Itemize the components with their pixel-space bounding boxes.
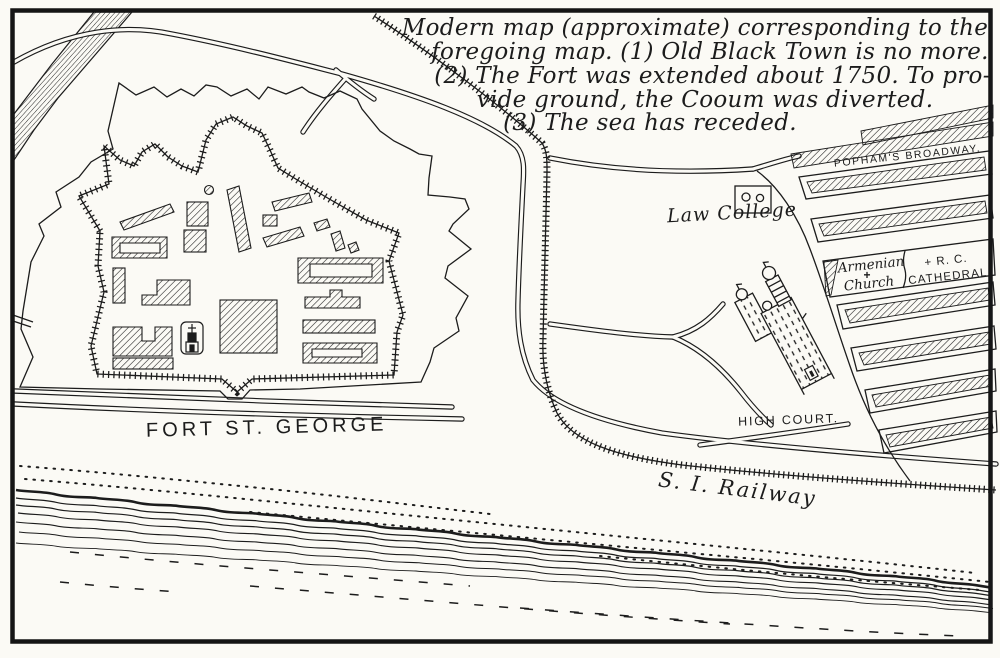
high-court-building [725,256,840,403]
armenian-church-block [823,239,995,297]
railway-line [374,16,996,490]
map-drawing [0,0,1000,658]
city-blocks [791,105,997,453]
fort-buildings [112,186,383,370]
cooum-river [14,12,132,160]
st-marys-church-icon [181,322,203,354]
sea-shoreline [16,466,993,636]
law-college-building [735,186,771,213]
engraved-map-madras: Modern map (approximate) corresponding t… [0,0,1000,658]
map-frame [13,11,991,642]
